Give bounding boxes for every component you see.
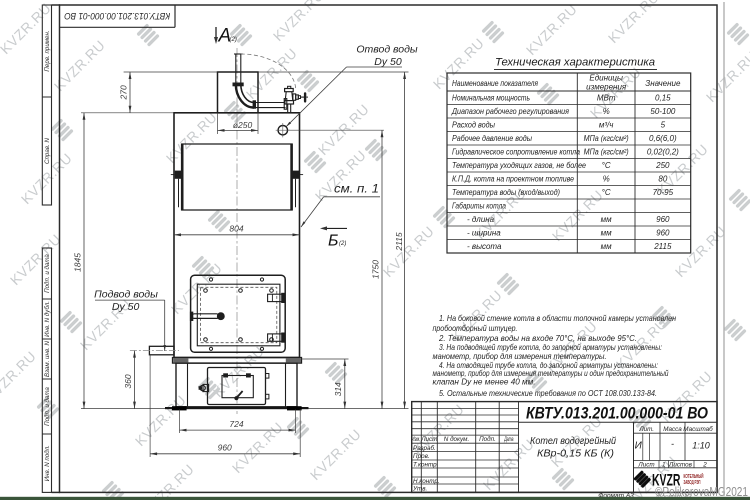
svg-text:(2): (2) — [339, 241, 346, 247]
svg-text:N докум.: N докум. — [444, 435, 469, 443]
svg-text:(2): (2) — [230, 37, 237, 43]
svg-text:1: 1 — [662, 461, 666, 468]
svg-text:Лист: Лист — [420, 436, 437, 443]
svg-text:м³/ч: м³/ч — [599, 120, 614, 129]
svg-text:Лит.: Лит. — [638, 426, 654, 433]
svg-text:Температура уходящих газов, не: Температура уходящих газов, не более — [452, 161, 586, 170]
svg-text:0,02(0,2): 0,02(0,2) — [647, 147, 679, 156]
svg-text:Инв. N подл.: Инв. N подл. — [44, 445, 51, 481]
svg-text:%: % — [603, 174, 610, 183]
svg-text:см. п. 1: см. п. 1 — [334, 184, 379, 196]
svg-text:-: - — [671, 439, 674, 449]
svg-text:мм: мм — [601, 228, 612, 237]
svg-text:Единицы: Единицы — [589, 74, 623, 83]
svg-text:Лист: Лист — [637, 461, 654, 468]
svg-text:- ширина: - ширина — [467, 228, 501, 237]
svg-text:- длина: - длина — [467, 215, 495, 224]
svg-text:Dy 50: Dy 50 — [374, 56, 402, 68]
svg-text:Температура воды (вход/выход): Температура воды (вход/выход) — [452, 188, 560, 197]
svg-text:Подп. и дата: Подп. и дата — [44, 387, 51, 426]
svg-text:Диапазон рабочего регулировани: Диапазон рабочего регулирования — [451, 107, 570, 116]
svg-text:%: % — [603, 107, 610, 116]
svg-text:Пров.: Пров. — [413, 453, 430, 460]
svg-text:Масштаб: Масштаб — [683, 425, 713, 433]
svg-text:КВТУ.013.201.00.000-01 ВО: КВТУ.013.201.00.000-01 ВО — [526, 404, 708, 422]
svg-text:724: 724 — [229, 419, 243, 429]
svg-text:50-100: 50-100 — [650, 107, 675, 116]
svg-text:1. На боковой стенке котла в: 1. На боковой стенке котла в области топ… — [439, 313, 676, 323]
svg-text:Подвод воды: Подвод воды — [94, 288, 158, 300]
svg-text:1750: 1750 — [371, 260, 381, 279]
svg-text:960: 960 — [656, 215, 670, 224]
svg-text:МВт: МВт — [597, 93, 616, 102]
svg-text:пробоотборный штуцер.: пробоотборный штуцер. — [433, 323, 518, 333]
svg-text:°С: °С — [602, 161, 611, 170]
svg-text:измерения: измерения — [586, 83, 627, 92]
svg-text:Листов: Листов — [668, 461, 693, 468]
svg-text:Утв.: Утв. — [412, 486, 427, 493]
svg-text:Взам. инв. N: Взам. инв. N — [44, 340, 51, 377]
svg-text:Разраб.: Разраб. — [413, 444, 436, 452]
svg-text:1845: 1845 — [73, 253, 83, 272]
svg-text:мм: мм — [601, 215, 612, 224]
svg-text:314: 314 — [333, 382, 343, 396]
svg-text:2115: 2115 — [653, 242, 672, 251]
svg-text:70-95: 70-95 — [653, 188, 674, 197]
svg-text:И: И — [635, 441, 643, 452]
svg-text:Подп. и дата: Подп. и дата — [44, 254, 51, 293]
svg-text:5. Остальные технические треб: 5. Остальные технические требования по О… — [439, 388, 657, 398]
svg-text:Номинальная мощность: Номинальная мощность — [452, 93, 530, 102]
svg-text:- высота: - высота — [467, 242, 502, 251]
svg-text:0,6(6,0): 0,6(6,0) — [649, 134, 677, 143]
svg-text:К.П.Д. котла на проектном топл: К.П.Д. котла на проектном топливе — [452, 174, 574, 183]
svg-text:Отвод воды: Отвод воды — [356, 44, 418, 56]
svg-text:Техническая характеристика: Техническая характеристика — [495, 57, 655, 69]
svg-text:Котел водогрейный: Котел водогрейный — [530, 436, 616, 447]
svg-text:804: 804 — [229, 224, 243, 234]
svg-text:Рабочее давление воды: Рабочее давление воды — [452, 134, 532, 143]
svg-text:Dy 50: Dy 50 — [112, 301, 140, 313]
svg-text:Подп.: Подп. — [479, 435, 496, 443]
svg-text:Изм.: Изм. — [412, 436, 421, 443]
svg-text:360: 360 — [123, 374, 133, 388]
svg-text:МПа (кгс/см²): МПа (кгс/см²) — [584, 147, 629, 156]
svg-text:5: 5 — [661, 120, 666, 129]
svg-text:Расход воды: Расход воды — [452, 120, 495, 129]
svg-text:клапан Dу не менее 40 мм.: клапан Dу не менее 40 мм. — [433, 377, 536, 387]
svg-text:Гидравлическое сопротивление к: Гидравлическое сопротивление котла — [452, 147, 580, 156]
svg-text:Н.контр.: Н.контр. — [413, 478, 440, 485]
svg-text:А: А — [218, 26, 232, 47]
svg-text:Масса: Масса — [663, 426, 682, 433]
svg-text:960: 960 — [656, 228, 670, 237]
svg-text:0,15: 0,15 — [655, 93, 671, 102]
svg-text:Наименование показателя: Наименование показателя — [452, 79, 539, 88]
svg-text:Справ. N: Справ. N — [44, 138, 51, 164]
svg-text:Значение: Значение — [645, 79, 681, 88]
svg-text:Перв. примен.: Перв. примен. — [44, 30, 51, 71]
svg-text:°С: °С — [602, 188, 611, 197]
svg-text:Инв. N дубл.: Инв. N дубл. — [44, 301, 51, 337]
svg-text:Габариты котла: Габариты котла — [452, 201, 506, 210]
svg-text:80: 80 — [658, 174, 667, 183]
svg-text:КВр-0,15 КБ (К): КВр-0,15 КБ (К) — [537, 449, 614, 460]
svg-text:КОТЕЛЬНЫЙ: КОТЕЛЬНЫЙ — [684, 472, 704, 480]
svg-text:ø250: ø250 — [233, 120, 253, 130]
svg-text:мм: мм — [601, 242, 612, 251]
svg-text:КВТУ.013.201.00.000-01 ВО: КВТУ.013.201.00.000-01 ВО — [64, 11, 170, 21]
svg-text:МПа (кгс/см²): МПа (кгс/см²) — [584, 134, 629, 143]
svg-text:Дата: Дата — [504, 436, 514, 443]
svg-text:2: 2 — [702, 461, 707, 468]
svg-text:270: 270 — [118, 85, 128, 100]
svg-text:Т.контр.: Т.контр. — [413, 461, 438, 468]
svg-text:960: 960 — [218, 443, 232, 453]
svg-text:250: 250 — [655, 161, 670, 170]
svg-text:Б: Б — [328, 233, 338, 250]
svg-text:1:10: 1:10 — [692, 441, 710, 451]
svg-text:2115: 2115 — [394, 232, 404, 252]
